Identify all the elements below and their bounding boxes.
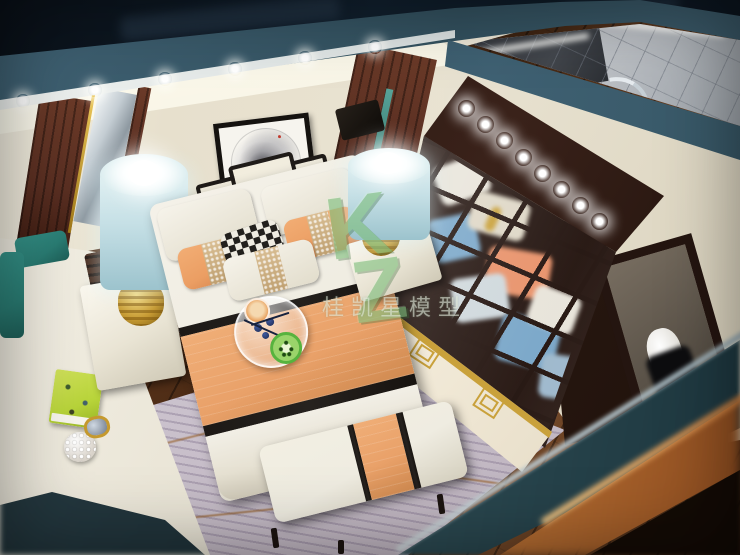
model-photo: K Z 桂凯星模型 — [0, 0, 740, 555]
vignette — [0, 0, 740, 555]
